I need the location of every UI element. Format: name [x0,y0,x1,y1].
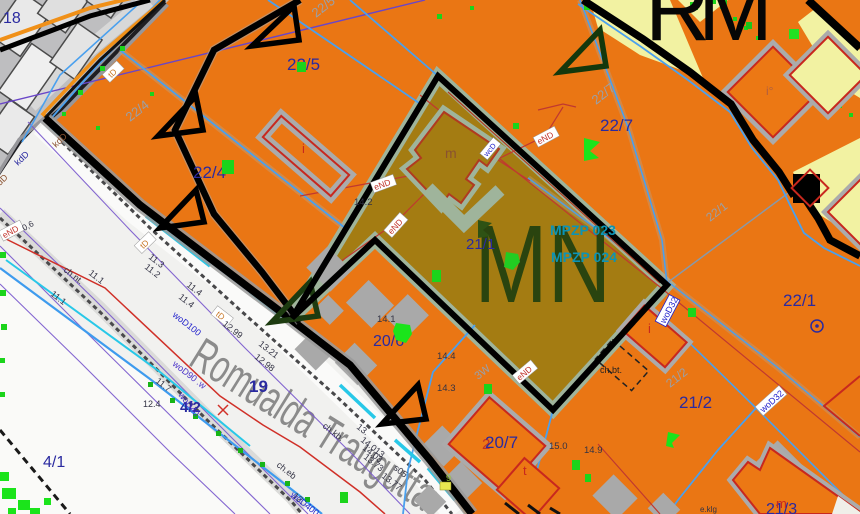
svg-text:18: 18 [3,10,21,27]
svg-text:19: 19 [249,377,268,396]
svg-text:21/2: 21/2 [679,393,712,412]
svg-text:i: i [648,321,651,336]
svg-text:14.3: 14.3 [437,383,456,394]
svg-text:MPZP 024: MPZP 024 [551,249,617,265]
svg-text:12.4: 12.4 [143,399,161,409]
svg-text:i°: i° [766,84,774,98]
svg-text:MPZP 023: MPZP 023 [550,222,616,238]
svg-text:21/1: 21/1 [466,236,495,253]
svg-text:4/1: 4/1 [43,454,65,471]
svg-text:t: t [523,463,527,478]
svg-text:e.klg: e.klg [700,505,717,514]
svg-text:ch.bt.: ch.bt. [600,365,622,375]
svg-text:14.9: 14.9 [584,445,603,456]
svg-text:22/7: 22/7 [600,116,633,135]
svg-text:22/1: 22/1 [783,291,816,310]
svg-text:9: 9 [446,473,451,483]
svg-text:22/4: 22/4 [193,163,226,182]
svg-text:m: m [776,496,787,511]
svg-text:M: M [698,0,773,60]
svg-text:15.0: 15.0 [549,441,568,452]
svg-text:14.4: 14.4 [437,351,456,362]
svg-text:20/7: 20/7 [485,433,518,452]
svg-text:14.1: 14.1 [377,314,396,325]
svg-text:i: i [302,141,305,156]
svg-text:14.2: 14.2 [354,197,373,208]
svg-text:m: m [445,145,457,161]
